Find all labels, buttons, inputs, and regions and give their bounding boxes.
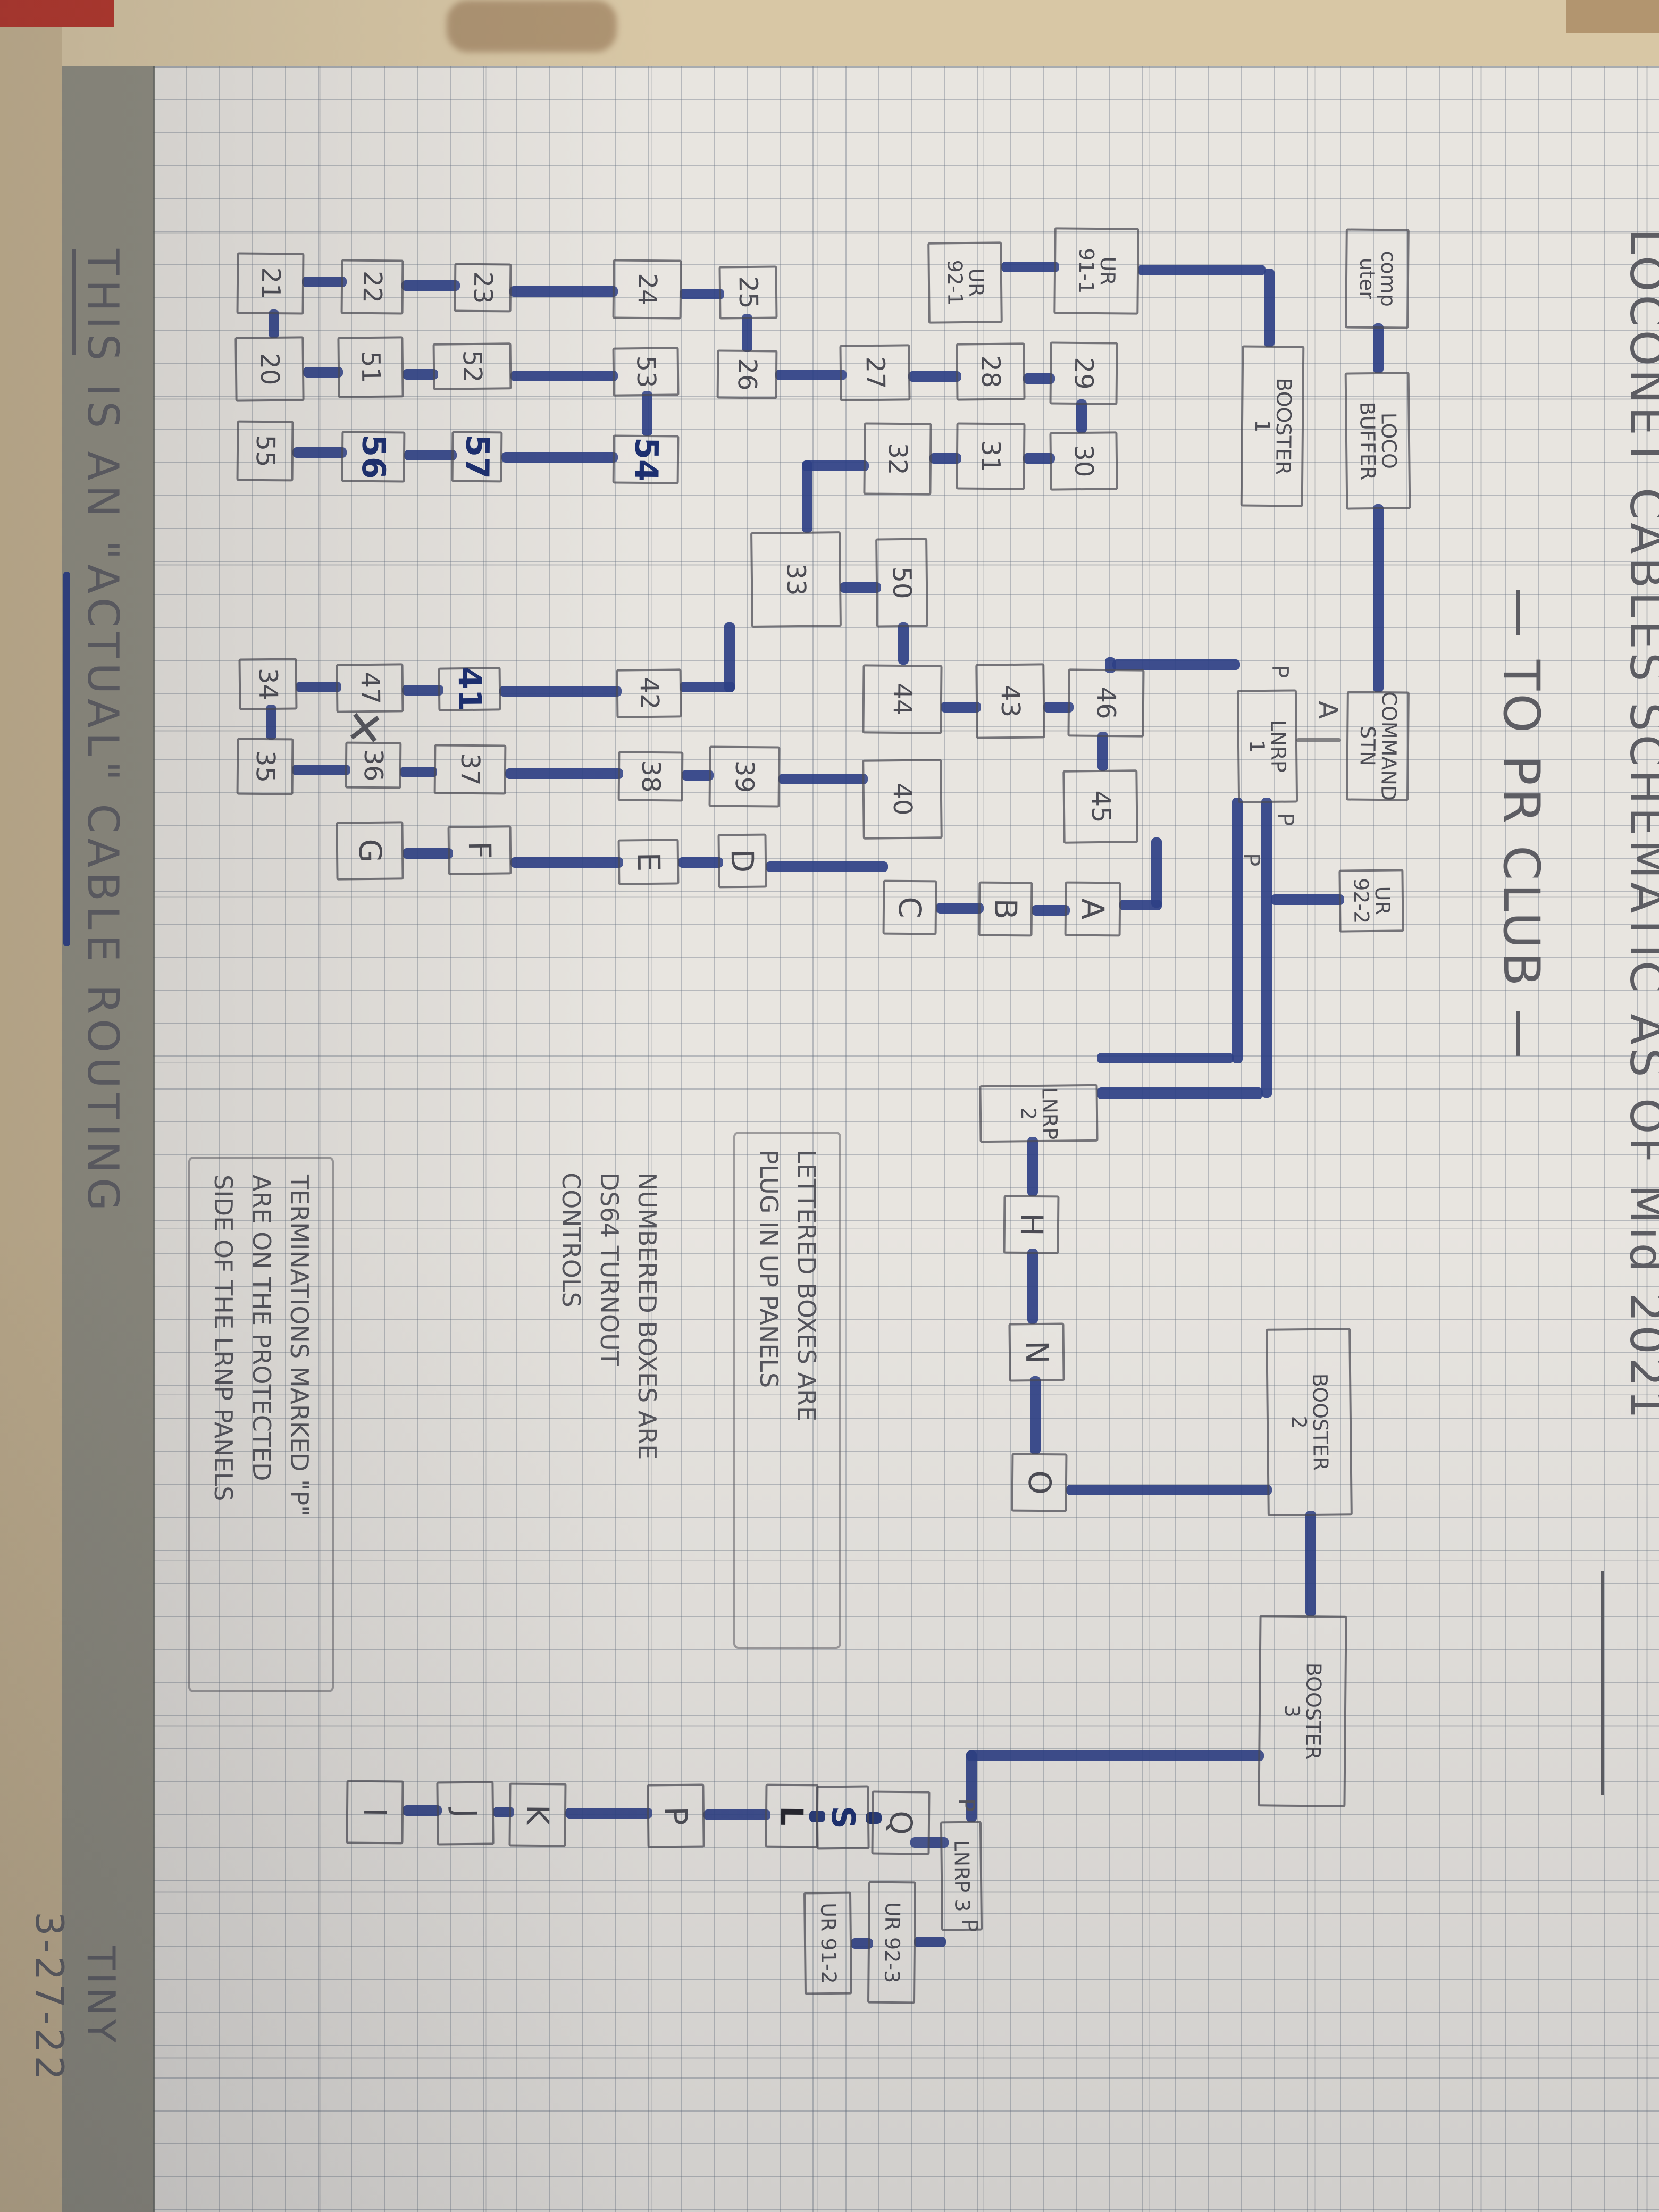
- box-computer: comp uter: [1345, 228, 1410, 329]
- cable-segment: [1138, 265, 1266, 275]
- cable-segment: [1097, 1087, 1263, 1099]
- box-ur-92-2: UR 92-2: [1338, 869, 1404, 932]
- title-underline: [1601, 1571, 1604, 1795]
- cable-segment: [680, 289, 724, 299]
- box-30: 30: [1049, 431, 1118, 490]
- box-50: 50: [875, 538, 928, 627]
- box-C: C: [883, 880, 937, 935]
- footer-underline-this: [72, 249, 76, 355]
- box-51: 51: [337, 336, 404, 398]
- box-44: 44: [862, 664, 942, 734]
- box-57: 57: [451, 431, 503, 483]
- box-24: 24: [613, 259, 682, 319]
- box-booster-1: BOOSTER 1: [1241, 345, 1305, 507]
- cable-segment: [1097, 1053, 1234, 1063]
- box-25: 25: [718, 265, 777, 319]
- box-S: S: [816, 1785, 869, 1849]
- grid-edge-line: [153, 66, 155, 2212]
- cable-segment: [510, 371, 618, 381]
- box-40: 40: [862, 759, 943, 840]
- box-52: 52: [433, 342, 512, 390]
- note-lettered: LETTERED BOXES ARE PLUG IN UP PANELS: [733, 1132, 841, 1649]
- note-numbered: NUMBERED BOXES ARE DS64 TURNOUT CONTROLS: [552, 1172, 666, 1598]
- box-command-stn: COMMAND STN: [1346, 691, 1410, 801]
- box-20: 20: [234, 336, 304, 401]
- box-28: 28: [956, 342, 1025, 400]
- box-J: J: [436, 1781, 494, 1845]
- cable-segment: [400, 767, 437, 777]
- box-22: 22: [341, 259, 404, 314]
- box-ur-92-1: UR 92-1: [927, 241, 1003, 323]
- box-55: 55: [237, 421, 294, 482]
- protected-termination-label: P: [1238, 853, 1264, 866]
- box-38: 38: [618, 751, 684, 801]
- box-G: G: [336, 821, 404, 880]
- cable-segment: [775, 370, 847, 380]
- box-43: 43: [975, 663, 1045, 739]
- cable-segment: [966, 1750, 1264, 1761]
- cable-segment: [936, 903, 984, 914]
- cable-segment: [1271, 894, 1344, 905]
- box-loco-buffer: LOCO BUFFER: [1345, 372, 1411, 509]
- box-booster-2: BOOSTER 2: [1266, 1328, 1353, 1516]
- box-lnrp-3: LNRP 3: [940, 1821, 983, 1931]
- cable-segment: [914, 1937, 946, 1947]
- box-21: 21: [236, 252, 304, 314]
- tabletop-stain: [447, 0, 617, 52]
- box-E: E: [618, 839, 680, 885]
- box-ur-91-1: UR 91-1: [1053, 227, 1139, 314]
- tabletop-strip-2: [0, 0, 62, 2212]
- box-34: 34: [238, 658, 297, 710]
- cable-segment: [678, 857, 723, 868]
- cable-segment: [1305, 1511, 1316, 1616]
- cable-segment: [1027, 1137, 1038, 1196]
- box-Q: Q: [871, 1791, 930, 1855]
- cable-segment: [1261, 798, 1272, 1098]
- box-B: B: [978, 882, 1033, 937]
- page-subtitle: — TO PR CLUB —: [1492, 588, 1550, 1062]
- cable-segment: [1373, 504, 1384, 692]
- tabletop-shadow: [1566, 0, 1659, 33]
- box-ur-92-3: UR 92-3: [867, 1881, 916, 2004]
- red-object-on-table: [0, 0, 114, 27]
- cable-segment: [680, 682, 735, 692]
- cable-segment: [840, 582, 881, 593]
- cable-segment: [941, 702, 981, 713]
- cable-segment: [1027, 1249, 1038, 1324]
- cable-segment: [510, 857, 623, 868]
- box-F: F: [448, 825, 512, 875]
- cable-segment: [898, 622, 909, 665]
- box-41: 41: [438, 667, 501, 711]
- cable-segment: [401, 280, 460, 291]
- cable-segment: [505, 768, 623, 779]
- box-23: 23: [454, 263, 512, 313]
- tabletop-strip: [0, 0, 1659, 66]
- cable-segment: [292, 447, 347, 458]
- cable-segment: [1373, 323, 1384, 373]
- page-title: LOCONET CABLES SCHEMATIC AS OF Mid 2021: [1620, 229, 1659, 1422]
- cable-segment: [1232, 798, 1243, 1063]
- cable-segment: [778, 774, 868, 784]
- cable-segment: [1264, 269, 1275, 347]
- footer-note: THIS IS AN "ACTUAL" CABLE ROUTING: [78, 249, 128, 1216]
- box-45: 45: [1062, 769, 1138, 843]
- cable-segment: [1296, 738, 1341, 742]
- cable-segment: [1112, 659, 1240, 670]
- signature-name: TINY: [79, 1946, 123, 2046]
- photo-of-schematic: LOCONET CABLES SCHEMATIC AS OF Mid 2021 …: [0, 0, 1659, 2212]
- box-I: I: [346, 1780, 404, 1845]
- box-56: 56: [341, 431, 406, 482]
- box-33: 33: [750, 531, 842, 628]
- box-N: N: [1008, 1322, 1065, 1381]
- box-35: 35: [237, 738, 294, 795]
- box-37: 37: [434, 744, 507, 794]
- box-46: 46: [1067, 668, 1144, 737]
- cable-segment: [509, 286, 618, 297]
- cable-segment: [1119, 900, 1162, 910]
- box-O: O: [1011, 1453, 1068, 1512]
- cable-segment: [402, 685, 443, 696]
- cable-annotation: A: [1312, 701, 1343, 719]
- box-53: 53: [613, 347, 680, 396]
- box-27: 27: [839, 344, 910, 401]
- cable-segment: [908, 371, 961, 382]
- box-54: 54: [613, 434, 680, 484]
- cable-segment: [642, 391, 652, 436]
- cable-segment: [1030, 1376, 1041, 1454]
- cable-segment: [565, 1808, 652, 1819]
- box-32: 32: [863, 422, 932, 495]
- rotated-page: LOCONET CABLES SCHEMATIC AS OF Mid 2021 …: [0, 0, 1659, 2212]
- crossed-out-mark: ✕: [334, 705, 392, 750]
- note-terminations: TERMINATIONS MARKED "P" ARE ON THE PROTE…: [188, 1157, 334, 1692]
- cable-segment: [1097, 732, 1108, 771]
- cable-segment: [404, 450, 457, 460]
- cable-segment: [501, 452, 618, 463]
- protected-termination-label: P: [953, 1798, 979, 1812]
- footer-underline-actual-cable: [63, 572, 70, 946]
- box-P: P: [647, 1783, 705, 1848]
- box-lnrp-2: LNRP 2: [979, 1084, 1098, 1143]
- cable-segment: [802, 460, 812, 533]
- protected-termination-label: P: [1267, 665, 1293, 678]
- protected-termination-label: P: [1272, 812, 1298, 826]
- cable-segment: [766, 861, 888, 872]
- cable-segment: [499, 686, 622, 697]
- cable-segment: [1001, 262, 1059, 272]
- cable-segment: [403, 848, 453, 859]
- protected-termination-label: P: [957, 1918, 983, 1932]
- box-L: L: [765, 1784, 818, 1848]
- box-D: D: [717, 834, 767, 889]
- cable-segment: [703, 1809, 770, 1820]
- box-A: A: [1065, 882, 1121, 937]
- cable-segment: [1066, 1485, 1272, 1495]
- box-H: H: [1003, 1195, 1060, 1254]
- box-booster-3: BOOSTER 3: [1258, 1615, 1347, 1807]
- signature-date: 3-27-22: [27, 1912, 72, 2083]
- cable-segment: [1151, 837, 1162, 908]
- box-K: K: [508, 1783, 566, 1847]
- cable-segment: [302, 276, 347, 287]
- box-ur-91-2: UR 91-2: [803, 1892, 852, 1995]
- cable-segment: [296, 682, 341, 692]
- cable-segment: [742, 314, 752, 352]
- box-26: 26: [717, 350, 778, 399]
- box-31: 31: [956, 422, 1025, 490]
- cable-segment: [303, 367, 343, 378]
- cable-segment: [292, 765, 350, 775]
- box-29: 29: [1049, 341, 1118, 405]
- box-42: 42: [616, 668, 682, 718]
- box-36: 36: [345, 742, 402, 789]
- box-39: 39: [709, 745, 781, 807]
- box-lnrp-1: LNRP 1: [1237, 689, 1298, 803]
